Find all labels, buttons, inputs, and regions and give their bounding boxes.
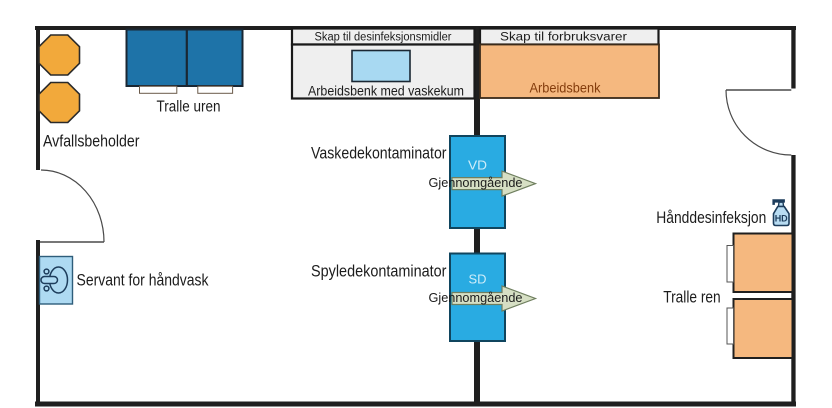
svg-text:Skap til forbruksvarer: Skap til forbruksvarer	[500, 31, 627, 43]
svg-text:Skap til desinfeksjonsmidler: Skap til desinfeksjonsmidler	[315, 32, 452, 44]
svg-text:VD: VD	[468, 157, 487, 172]
svg-text:Tralle ren: Tralle ren	[663, 288, 721, 307]
svg-text:Spyledekontaminator: Spyledekontaminator	[311, 261, 447, 280]
svg-text:Gjennomgående: Gjennomgående	[429, 176, 523, 190]
svg-text:Arbeidsbenk: Arbeidsbenk	[530, 81, 601, 96]
svg-text:SD: SD	[469, 272, 487, 287]
svg-text:Arbeidsbenk med vaskekum: Arbeidsbenk med vaskekum	[308, 84, 464, 99]
svg-text:Servant for håndvask: Servant for håndvask	[77, 270, 209, 289]
svg-text:HD: HD	[775, 214, 788, 224]
svg-text:Vaskedekontaminator: Vaskedekontaminator	[311, 144, 447, 163]
svg-text:Hånddesinfeksjon: Hånddesinfeksjon	[656, 208, 766, 227]
svg-text:Tralle uren: Tralle uren	[157, 99, 221, 116]
svg-text:Avfallsbeholder: Avfallsbeholder	[43, 132, 140, 151]
svg-text:Gjennomgående: Gjennomgående	[429, 291, 523, 305]
